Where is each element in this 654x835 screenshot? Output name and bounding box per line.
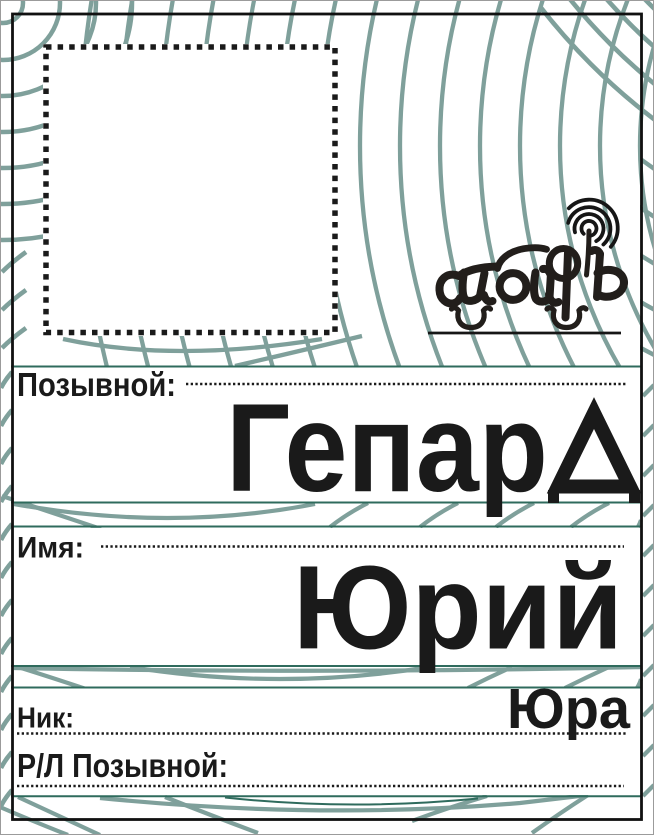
- svg-text:Имя:: Имя:: [17, 532, 84, 565]
- svg-text:Р/Л Позывной:: Р/Л Позывной:: [17, 747, 228, 784]
- svg-text:Юрий: Юрий: [293, 542, 623, 675]
- svg-text:Юра: Юра: [507, 677, 631, 741]
- svg-text:Гепар: Гепар: [226, 379, 548, 518]
- svg-text:Ник:: Ник:: [17, 703, 74, 735]
- svg-text:Позывной:: Позывной:: [17, 366, 176, 403]
